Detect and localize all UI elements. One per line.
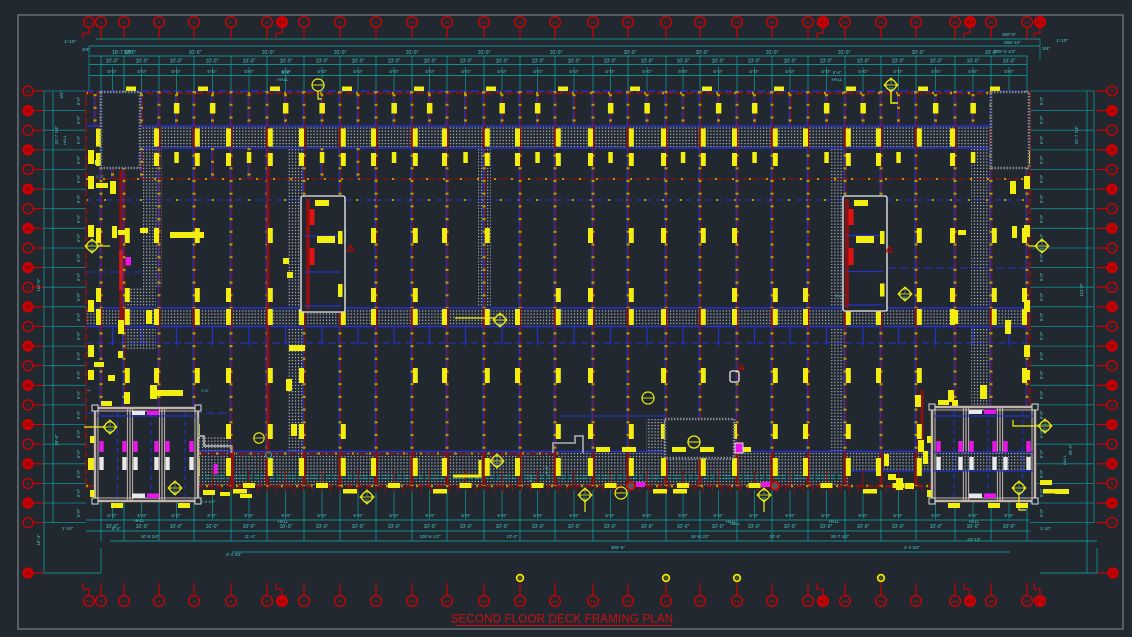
svg-text:5'-0″: 5'-0″: [968, 69, 978, 74]
svg-text:5'-0″: 5'-0″: [76, 174, 81, 183]
svg-text:LL: LL: [1110, 108, 1115, 113]
svg-text:HALL: HALL: [278, 77, 290, 82]
svg-text:B: B: [1110, 481, 1113, 487]
svg-text:5'-0″: 5'-0″: [353, 513, 363, 518]
svg-text:11'-4″: 11'-4″: [245, 534, 256, 539]
svg-text:H: H: [26, 246, 30, 252]
svg-text:10'-0″: 10'-0″: [388, 59, 401, 65]
svg-text:HH: HH: [1109, 226, 1115, 231]
svg-text:1: 1: [100, 20, 103, 26]
svg-text:5'-0″: 5'-0″: [76, 115, 81, 124]
svg-text:26'-4″: 26'-4″: [1068, 444, 1073, 455]
svg-text:5'-0″: 5'-0″: [76, 351, 81, 360]
svg-text:10'-0″: 10'-0″: [1003, 524, 1016, 530]
svg-text:BB: BB: [1109, 461, 1115, 466]
svg-text:260'-6″: 260'-6″: [1002, 32, 1017, 37]
svg-text:21.4: 21.4: [819, 599, 828, 604]
svg-text:5'-0″: 5'-0″: [171, 69, 181, 74]
svg-text:0.1: 0.1: [86, 20, 93, 26]
svg-text:10'-6″: 10'-6″: [769, 534, 781, 539]
svg-text:10'-0″: 10'-0″: [334, 50, 347, 56]
svg-text:10'-0″: 10'-0″: [170, 59, 183, 65]
svg-text:1'-2″: 1'-2″: [528, 473, 533, 482]
svg-text:5'-0″: 5'-0″: [858, 69, 868, 74]
svg-text:5'-0″: 5'-0″: [281, 513, 291, 518]
svg-text:EE: EE: [25, 344, 31, 349]
svg-text:20: 20: [769, 599, 775, 605]
svg-text:HALL: HALL: [969, 519, 980, 524]
svg-text:6.4: 6.4: [279, 599, 286, 604]
svg-text:6: 6: [266, 599, 269, 605]
svg-text:7: 7: [303, 20, 306, 26]
svg-text:5'-0″: 5'-0″: [107, 69, 117, 74]
svg-text:5'-0″: 5'-0″: [821, 69, 831, 74]
svg-text:5'-0″: 5'-0″: [678, 69, 688, 74]
svg-text:D2: D2: [173, 489, 178, 493]
svg-text:5'-0″: 5'-0″: [569, 69, 579, 74]
svg-text:10'-0″: 10'-0″: [784, 59, 797, 65]
svg-text:26: 26: [988, 20, 994, 26]
svg-text:5'-0″: 5'-0″: [389, 69, 399, 74]
svg-text:22: 22: [842, 20, 848, 26]
svg-text:5'-0″: 5'-0″: [642, 513, 652, 518]
svg-text:1′: 1′: [86, 388, 91, 391]
svg-text:2: 2: [1041, 242, 1043, 246]
svg-text:10'-0″: 10'-0″: [136, 524, 149, 530]
svg-text:5'-0″: 5'-0″: [497, 69, 507, 74]
svg-text:10'-0″: 10'-0″: [604, 59, 617, 65]
svg-text:D2: D2: [1043, 427, 1048, 431]
svg-text:HH: HH: [25, 226, 31, 231]
svg-text:10'-0″: 10'-0″: [280, 524, 293, 530]
svg-text:10'-0″: 10'-0″: [460, 59, 473, 65]
svg-text:5'-0″: 5'-0″: [785, 69, 795, 74]
svg-text:10'-0″: 10'-0″: [641, 524, 654, 530]
svg-text:25.6: 25.6: [966, 599, 975, 604]
svg-text:31'-7 1/4″: 31'-7 1/4″: [54, 125, 59, 144]
svg-text:1: 1: [100, 599, 103, 605]
svg-text:D: D: [26, 403, 30, 409]
svg-text:2: 2: [904, 290, 906, 294]
svg-text:23: 23: [878, 20, 884, 26]
svg-text:5'-0″: 5'-0″: [749, 513, 759, 518]
svg-text:10'-0″: 10'-0″: [696, 50, 709, 56]
svg-text:5'-0″: 5'-0″: [76, 292, 81, 301]
svg-text:5'-0″: 5'-0″: [533, 69, 543, 74]
svg-text:5'-0″: 5'-0″: [389, 513, 399, 518]
svg-text:10'-0″: 10'-0″: [838, 50, 851, 56]
svg-text:5'-0″: 5'-0″: [244, 513, 254, 518]
svg-text:5'-0″: 5'-0″: [76, 429, 81, 438]
svg-text:14: 14: [552, 599, 558, 605]
svg-text:305'-6″: 305'-6″: [611, 545, 626, 550]
svg-text:12: 12: [481, 599, 487, 605]
svg-text:10'-0″: 10'-0″: [206, 524, 219, 530]
svg-text:5'-4″: 5'-4″: [833, 70, 842, 75]
svg-text:D2: D2: [495, 462, 500, 466]
svg-text:10'-0″: 10'-0″: [784, 524, 797, 530]
svg-text:5'-0″: 5'-0″: [1039, 370, 1044, 379]
svg-text:F: F: [27, 324, 30, 330]
svg-text:5'-0″: 5'-0″: [1039, 253, 1044, 262]
svg-text:2: 2: [109, 423, 111, 427]
svg-text:10'-4″: 10'-4″: [36, 534, 41, 546]
svg-text:10'-0″: 10'-0″: [820, 59, 833, 65]
svg-text:5'-0″: 5'-0″: [1039, 96, 1044, 105]
svg-text:5'-0″: 5'-0″: [76, 331, 81, 340]
svg-text:1A: 1A: [25, 571, 30, 576]
svg-text:HALL: HALL: [832, 77, 844, 82]
svg-text:F: F: [1111, 324, 1114, 330]
svg-text:8: 8: [339, 599, 342, 605]
svg-text:5'-0″: 5'-0″: [76, 508, 81, 517]
svg-text:DD: DD: [25, 383, 31, 388]
svg-text:6.4: 6.4: [279, 20, 286, 25]
svg-text:H: H: [1110, 246, 1114, 252]
svg-text:HALL: HALL: [1062, 454, 1067, 465]
svg-text:1'-10″: 1'-10″: [1056, 38, 1069, 44]
svg-text:1'-10″: 1'-10″: [62, 526, 74, 531]
svg-text:AA: AA: [25, 501, 31, 506]
svg-text:10'-0″: 10'-0″: [568, 59, 581, 65]
svg-text:GG: GG: [1109, 265, 1116, 270]
svg-text:10'-0″: 10'-0″: [892, 59, 905, 65]
svg-text:23'-10″: 23'-10″: [967, 537, 981, 542]
svg-text:11: 11: [445, 599, 450, 605]
svg-text:9: 9: [375, 20, 378, 26]
svg-text:10: 10: [409, 20, 415, 26]
svg-text:HALL: HALL: [829, 519, 840, 524]
svg-text:2: 2: [584, 491, 586, 495]
svg-text:HALL: HALL: [730, 521, 741, 526]
svg-text:5'-0″: 5'-0″: [749, 69, 759, 74]
svg-text:10'-0″: 10'-0″: [1003, 59, 1016, 65]
svg-text:5'-0″: 5'-0″: [1039, 115, 1044, 124]
svg-text:5: 5: [230, 599, 233, 605]
svg-text:5'-0″: 5'-0″: [76, 370, 81, 379]
svg-text:D2: D2: [762, 496, 767, 500]
svg-text:1'-5″: 1'-5″: [201, 388, 210, 393]
svg-text:5'-0″: 5'-0″: [1039, 390, 1044, 399]
svg-text:KK: KK: [25, 147, 31, 152]
svg-text:23: 23: [878, 599, 884, 605]
svg-text:D2: D2: [903, 295, 908, 299]
svg-text:5'-0″: 5'-0″: [968, 513, 978, 518]
svg-text:5'-0″: 5'-0″: [76, 312, 81, 321]
svg-text:21: 21: [805, 20, 811, 26]
svg-text:10'-0″: 10'-0″: [912, 50, 925, 56]
svg-text:2: 2: [174, 484, 176, 488]
svg-text:5'-0″: 5'-0″: [76, 488, 81, 497]
svg-text:10'-0″: 10'-0″: [478, 50, 491, 56]
svg-text:5'-0″: 5'-0″: [76, 253, 81, 262]
svg-text:5'-0″: 5'-0″: [76, 390, 81, 399]
svg-text:5'-0″: 5'-0″: [713, 69, 723, 74]
svg-text:19: 19: [734, 599, 740, 605]
svg-text:5'-0″: 5'-0″: [76, 449, 81, 458]
svg-text:2: 2: [123, 20, 126, 26]
svg-text:D2: D2: [108, 428, 113, 432]
svg-text:6'-4″: 6'-4″: [112, 526, 121, 531]
svg-text:18: 18: [697, 20, 703, 26]
svg-text:10'-0″: 10'-0″: [136, 59, 149, 65]
svg-text:2: 2: [123, 599, 126, 605]
svg-text:10'-0″: 10'-0″: [106, 59, 119, 65]
svg-text:5'-0″: 5'-0″: [244, 69, 254, 74]
svg-text:17: 17: [663, 599, 669, 605]
svg-text:D2: D2: [1040, 247, 1045, 251]
svg-text:5'-0″: 5'-0″: [76, 233, 81, 242]
svg-text:5'-0″: 5'-0″: [1039, 351, 1044, 360]
svg-text:2'-4 3/4″: 2'-4 3/4″: [226, 552, 243, 557]
svg-text:225'-5 1/4″: 225'-5 1/4″: [994, 49, 1016, 54]
svg-text:5'-0″: 5'-0″: [1039, 449, 1044, 458]
svg-text:10'-0″: 10'-0″: [243, 59, 256, 65]
svg-text:6'-9 1/4″: 6'-9 1/4″: [201, 499, 216, 504]
svg-text:10'-0″: 10'-0″: [170, 524, 183, 530]
svg-text:10'-0″: 10'-0″: [930, 524, 943, 530]
svg-text:3: 3: [158, 20, 161, 26]
svg-text:10'-8 1/4″: 10'-8 1/4″: [141, 534, 160, 539]
svg-text:5'-0″: 5'-0″: [76, 272, 81, 281]
svg-text:5'-0″: 5'-0″: [1039, 272, 1044, 281]
svg-text:5'-0″: 5'-0″: [931, 69, 941, 74]
svg-text:10'-0″: 10'-0″: [406, 50, 419, 56]
svg-text:E: E: [26, 363, 29, 369]
svg-text:6: 6: [266, 20, 269, 26]
svg-text:5'-0″: 5'-0″: [642, 69, 652, 74]
svg-text:CC: CC: [1109, 422, 1115, 427]
svg-text:10'-0″: 10'-0″: [352, 524, 365, 530]
svg-text:G: G: [1110, 285, 1114, 291]
svg-text:2: 2: [763, 491, 765, 495]
svg-text:5'-0″: 5'-0″: [821, 513, 831, 518]
svg-text:10'-0″: 10'-0″: [604, 524, 617, 530]
svg-text:5'-0″: 5'-0″: [1039, 194, 1044, 203]
svg-text:10: 10: [409, 599, 415, 605]
svg-text:19'-6 1/2″: 19'-6 1/2″: [691, 534, 710, 539]
svg-text:FF: FF: [1109, 304, 1115, 309]
svg-text:3: 3: [158, 599, 161, 605]
svg-text:D2: D2: [583, 496, 588, 500]
svg-text:1'-10″: 1'-10″: [64, 39, 77, 45]
svg-text:15: 15: [590, 20, 596, 26]
svg-text:5: 5: [230, 20, 233, 26]
svg-text:3/4″: 3/4″: [59, 91, 64, 99]
svg-text:1A: 1A: [1110, 571, 1115, 576]
svg-text:10'-0″: 10'-0″: [424, 59, 437, 65]
svg-text:5'-0″: 5'-0″: [1039, 410, 1044, 419]
svg-text:D2: D2: [889, 86, 894, 90]
svg-text:FF: FF: [25, 304, 31, 309]
svg-text:10'-0″: 10'-0″: [280, 59, 293, 65]
svg-text:5'-0″: 5'-0″: [893, 513, 903, 518]
svg-text:10'-0″: 10'-0″: [967, 524, 980, 530]
svg-text:10'-0″: 10'-0″: [677, 524, 690, 530]
svg-text:25: 25: [952, 20, 958, 26]
svg-text:5'-0″: 5'-0″: [317, 69, 327, 74]
svg-text:25: 25: [952, 599, 958, 605]
svg-text:22: 22: [842, 599, 848, 605]
svg-text:C: C: [1110, 442, 1114, 448]
svg-text:DD: DD: [1109, 383, 1115, 388]
svg-text:5'-0″: 5'-0″: [713, 513, 723, 518]
svg-text:5'-0″: 5'-0″: [605, 513, 615, 518]
svg-text:256'-10″: 256'-10″: [1004, 40, 1021, 45]
svg-text:29'-7 1/2″: 29'-7 1/2″: [831, 534, 850, 539]
svg-text:3/4″: 3/4″: [1042, 46, 1051, 52]
svg-text:5'-0″: 5'-0″: [76, 214, 81, 223]
svg-text:10'-0″: 10'-0″: [766, 50, 779, 56]
svg-text:JJ: JJ: [1110, 187, 1114, 192]
svg-text:10'-0″: 10'-0″: [424, 524, 437, 530]
svg-text:1″: 1″: [840, 376, 844, 381]
svg-text:5'-0″: 5'-0″: [1004, 513, 1014, 518]
svg-text:5'-0″: 5'-0″: [425, 513, 435, 518]
svg-text:5'-0″: 5'-0″: [893, 69, 903, 74]
svg-text:5'-0″: 5'-0″: [207, 513, 217, 518]
svg-text:HALL: HALL: [62, 134, 67, 145]
svg-text:8: 8: [339, 20, 342, 26]
svg-text:10'-0″: 10'-0″: [388, 524, 401, 530]
svg-text:M: M: [26, 89, 30, 95]
svg-text:5'-0″: 5'-0″: [785, 513, 795, 518]
svg-text:SECOND FLOOR DECK FRAMING PLAN: SECOND FLOOR DECK FRAMING PLAN: [451, 614, 674, 626]
svg-text:10'-0″: 10'-0″: [189, 50, 202, 56]
svg-text:27: 27: [1024, 599, 1030, 605]
svg-text:5'-0″: 5'-0″: [76, 410, 81, 419]
svg-text:10'-0″: 10'-0″: [857, 524, 870, 530]
svg-text:5'-0″: 5'-0″: [76, 135, 81, 144]
svg-text:20: 20: [769, 20, 775, 26]
svg-text:5'-0″: 5'-0″: [1039, 292, 1044, 301]
svg-text:M: M: [1110, 89, 1114, 95]
svg-text:5'-0″: 5'-0″: [1039, 135, 1044, 144]
svg-text:B: B: [26, 481, 29, 487]
svg-text:5'-0″: 5'-0″: [76, 469, 81, 478]
svg-text:5'-0″: 5'-0″: [137, 69, 147, 74]
svg-text:5'-0″: 5'-0″: [1039, 155, 1044, 164]
svg-text:5'-0″: 5'-0″: [1004, 69, 1014, 74]
svg-text:10'-0″: 10'-0″: [316, 59, 329, 65]
svg-text:10'-0″: 10'-0″: [496, 59, 509, 65]
svg-text:10'-0″: 10'-0″: [641, 59, 654, 65]
svg-text:21: 21: [805, 599, 811, 605]
svg-text:27: 27: [1024, 20, 1030, 26]
svg-text:10'-0″: 10'-0″: [967, 59, 980, 65]
svg-text:2: 2: [1044, 422, 1046, 426]
svg-text:5'-0″: 5'-0″: [76, 155, 81, 164]
svg-text:10'-0″: 10'-0″: [712, 524, 725, 530]
svg-text:10'-0″: 10'-0″: [243, 524, 256, 530]
svg-text:L: L: [27, 128, 30, 134]
svg-text:5'-0″: 5'-0″: [1039, 312, 1044, 321]
svg-text:3 1/4″: 3 1/4″: [835, 293, 846, 298]
svg-text:10'-0″: 10'-0″: [496, 524, 509, 530]
svg-text:5'-0″: 5'-0″: [425, 69, 435, 74]
svg-text:HALL: HALL: [278, 519, 289, 524]
svg-text:L: L: [1111, 128, 1114, 134]
svg-text:2: 2: [91, 242, 93, 246]
svg-text:13: 13: [517, 599, 523, 605]
svg-text:10'-7 5/8″: 10'-7 5/8″: [112, 50, 133, 56]
svg-text:18: 18: [697, 599, 703, 605]
svg-text:5'-0″: 5'-0″: [76, 194, 81, 203]
svg-text:2: 2: [496, 457, 498, 461]
svg-text:5'-0″: 5'-0″: [569, 513, 579, 518]
svg-text:D2: D2: [90, 247, 95, 251]
svg-text:CC: CC: [25, 422, 31, 427]
svg-text:10'-0″: 10'-0″: [820, 524, 833, 530]
svg-text:GG: GG: [25, 265, 32, 270]
svg-text:5'-0″: 5'-0″: [858, 513, 868, 518]
svg-text:10'-0″: 10'-0″: [460, 524, 473, 530]
svg-text:5'-0″: 5'-0″: [1039, 214, 1044, 223]
svg-text:0.1: 0.1: [86, 599, 93, 605]
svg-text:10'-0″: 10'-0″: [748, 59, 761, 65]
svg-text:5'-0″: 5'-0″: [171, 513, 181, 518]
svg-text:BB: BB: [25, 461, 31, 466]
svg-text:15: 15: [590, 599, 596, 605]
svg-text:C: C: [26, 442, 30, 448]
svg-text:5'-0″: 5'-0″: [76, 96, 81, 105]
svg-text:5'-0″: 5'-0″: [317, 513, 327, 518]
svg-text:5'-0″: 5'-0″: [461, 69, 471, 74]
svg-text:24: 24: [913, 20, 919, 26]
svg-text:10'-0″: 10'-0″: [712, 59, 725, 65]
svg-text:3/4″: 3/4″: [82, 47, 91, 53]
svg-text:10'-0″: 10'-0″: [532, 524, 545, 530]
svg-text:10'-0″: 10'-0″: [532, 59, 545, 65]
svg-text:10'-0″: 10'-0″: [352, 59, 365, 65]
svg-text:10'-0″: 10'-0″: [624, 50, 637, 56]
svg-text:5'-0″: 5'-0″: [931, 513, 941, 518]
svg-text:111'-0″: 111'-0″: [36, 278, 41, 291]
svg-text:10'-0″: 10'-0″: [262, 50, 275, 56]
svg-text:19: 19: [734, 20, 740, 26]
svg-text:5'-0″: 5'-0″: [207, 69, 217, 74]
svg-text:5'-0″: 5'-0″: [1039, 469, 1044, 478]
svg-text:2: 2: [499, 316, 501, 320]
svg-text:2: 2: [1018, 484, 1020, 488]
svg-text:10'-0″: 10'-0″: [316, 524, 329, 530]
svg-text:5'-4″: 5'-4″: [282, 70, 291, 75]
svg-text:4: 4: [193, 20, 196, 26]
svg-text:1'-2″: 1'-2″: [96, 174, 105, 179]
svg-text:16: 16: [625, 599, 631, 605]
svg-text:JJ: JJ: [26, 187, 30, 192]
svg-text:17: 17: [663, 20, 669, 26]
svg-text:HALL: HALL: [134, 518, 145, 523]
svg-text:2: 2: [366, 493, 368, 497]
svg-text:1'-10″: 1'-10″: [1040, 526, 1052, 531]
svg-text:10'-0″: 10'-0″: [206, 59, 219, 65]
svg-text:5'-0″: 5'-0″: [678, 513, 688, 518]
svg-text:26: 26: [988, 599, 994, 605]
svg-text:4: 4: [193, 599, 196, 605]
svg-text:10'-0″: 10'-0″: [550, 50, 563, 56]
svg-text:27.2: 27.2: [1036, 599, 1045, 604]
svg-text:111'-0″: 111'-0″: [1079, 283, 1084, 296]
svg-text:10'-0″: 10'-0″: [857, 59, 870, 65]
svg-text:26'-4″: 26'-4″: [54, 434, 59, 446]
svg-text:2: 2: [890, 81, 892, 85]
svg-text:EE: EE: [1109, 344, 1115, 349]
svg-text:5'-0″: 5'-0″: [353, 69, 363, 74]
svg-text:2'-4 3/4″: 2'-4 3/4″: [904, 545, 921, 550]
svg-text:10'-0″: 10'-0″: [506, 534, 518, 539]
svg-text:5'-0″: 5'-0″: [605, 69, 615, 74]
